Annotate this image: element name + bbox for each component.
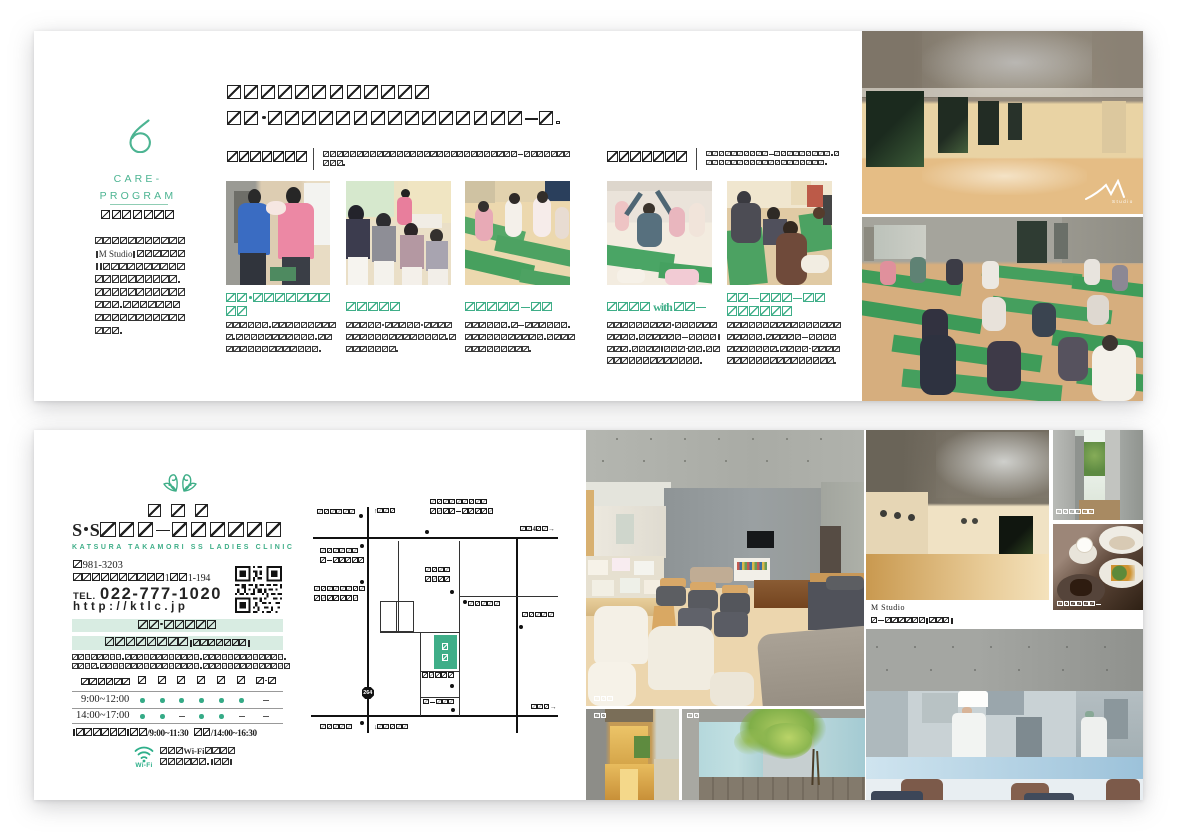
svg-text:Studio: Studio — [1112, 199, 1134, 204]
